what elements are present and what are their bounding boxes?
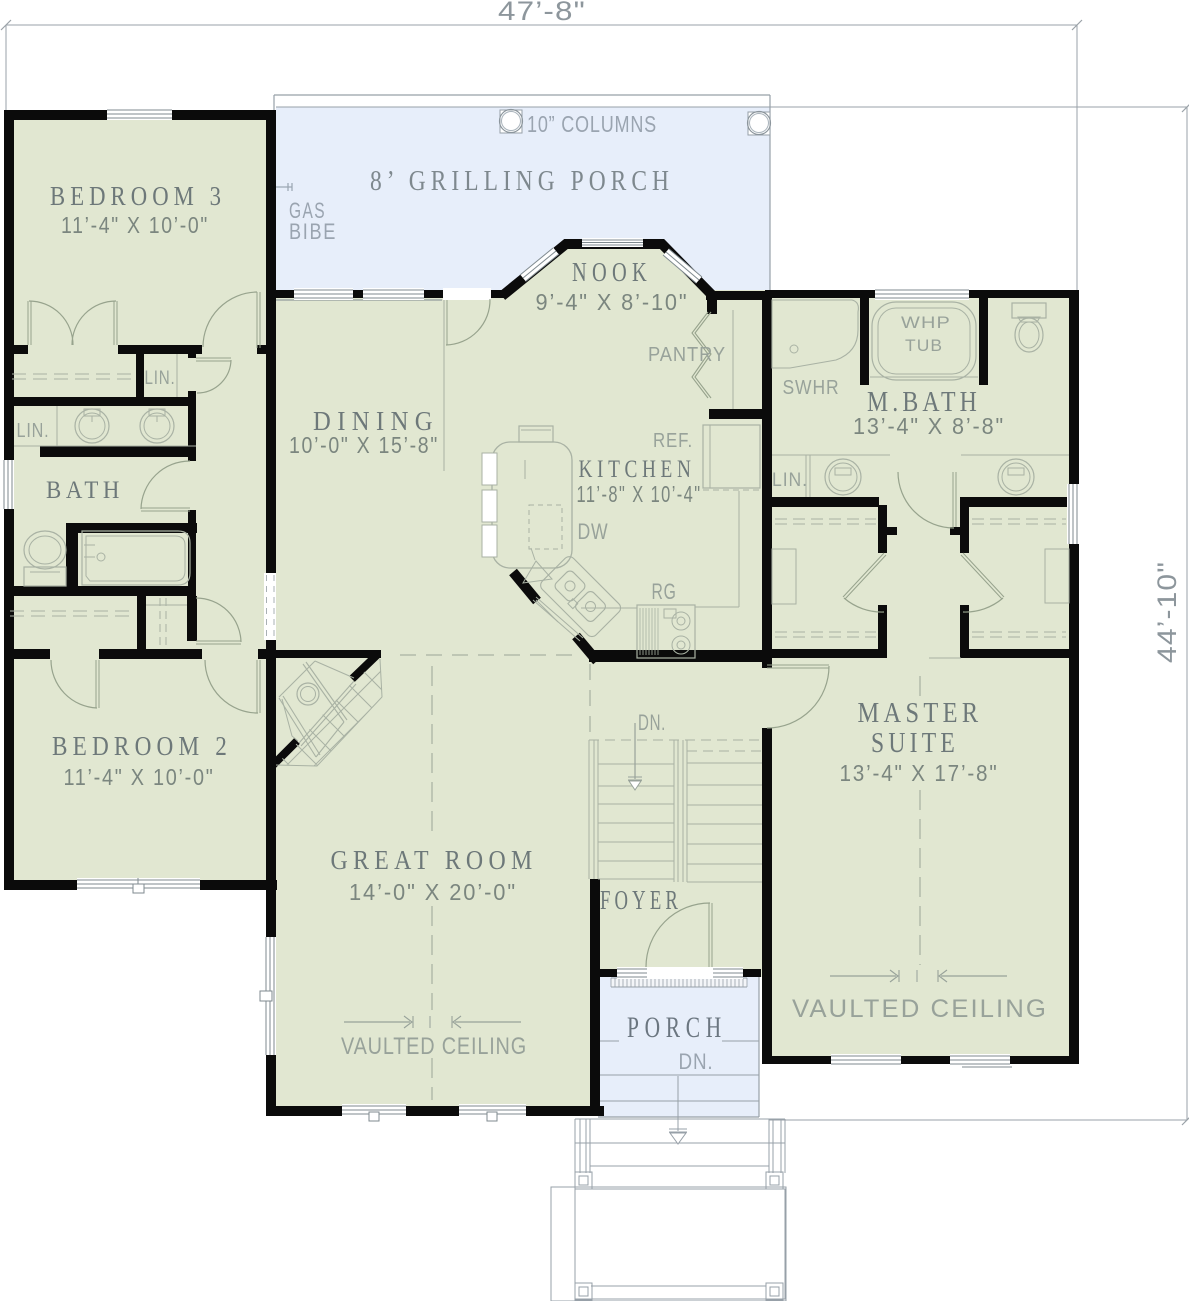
svg-text:PORCH: PORCH <box>627 1011 727 1044</box>
svg-text:VAULTED CEILING: VAULTED CEILING <box>792 995 1048 1023</box>
svg-text:LIN.: LIN. <box>145 368 176 389</box>
svg-text:BATH: BATH <box>46 477 124 504</box>
svg-text:WHP: WHP <box>901 313 951 332</box>
svg-text:13’-4" X 8’-8": 13’-4" X 8’-8" <box>853 413 1005 439</box>
svg-text:LIN.: LIN. <box>772 470 808 491</box>
svg-text:FOYER: FOYER <box>600 885 682 915</box>
svg-text:BIBE: BIBE <box>289 219 337 244</box>
svg-text:DN.: DN. <box>679 1049 714 1074</box>
svg-text:10” COLUMNS: 10” COLUMNS <box>527 111 657 137</box>
svg-text:SUITE: SUITE <box>871 728 959 759</box>
svg-text:BEDROOM 3: BEDROOM 3 <box>50 181 226 211</box>
svg-text:DN.: DN. <box>638 710 666 735</box>
svg-text:14’-0" X 20’-0": 14’-0" X 20’-0" <box>349 879 517 905</box>
svg-text:47’-8": 47’-8" <box>498 0 586 26</box>
svg-text:13’-4" X 17’-8": 13’-4" X 17’-8" <box>840 760 999 786</box>
svg-text:DW: DW <box>578 519 609 544</box>
svg-text:9’-4" X 8’-10": 9’-4" X 8’-10" <box>536 289 689 315</box>
svg-text:NOOK: NOOK <box>572 257 652 287</box>
svg-text:8’ GRILLING PORCH: 8’ GRILLING PORCH <box>370 166 674 197</box>
svg-text:LIN.: LIN. <box>17 420 50 442</box>
svg-text:VAULTED CEILING: VAULTED CEILING <box>341 1033 527 1060</box>
svg-text:11’-4" X 10’-0": 11’-4" X 10’-0" <box>64 764 215 790</box>
svg-text:BEDROOM 2: BEDROOM 2 <box>52 731 232 761</box>
svg-text:11’-8" X 10’-4": 11’-8" X 10’-4" <box>577 481 702 507</box>
svg-text:KITCHEN: KITCHEN <box>579 456 696 483</box>
svg-text:REF.: REF. <box>653 430 693 452</box>
svg-text:RG: RG <box>652 579 677 604</box>
svg-text:44’-10": 44’-10" <box>1152 561 1182 663</box>
svg-text:PANTRY: PANTRY <box>648 344 726 366</box>
svg-text:TUB: TUB <box>905 336 943 355</box>
svg-text:10’-0" X 15’-8": 10’-0" X 15’-8" <box>289 432 439 458</box>
svg-text:SWHR: SWHR <box>783 377 840 399</box>
svg-text:MASTER: MASTER <box>858 698 983 729</box>
svg-text:11’-4" X 10’-0": 11’-4" X 10’-0" <box>61 212 209 238</box>
svg-text:GREAT ROOM: GREAT ROOM <box>331 845 538 875</box>
